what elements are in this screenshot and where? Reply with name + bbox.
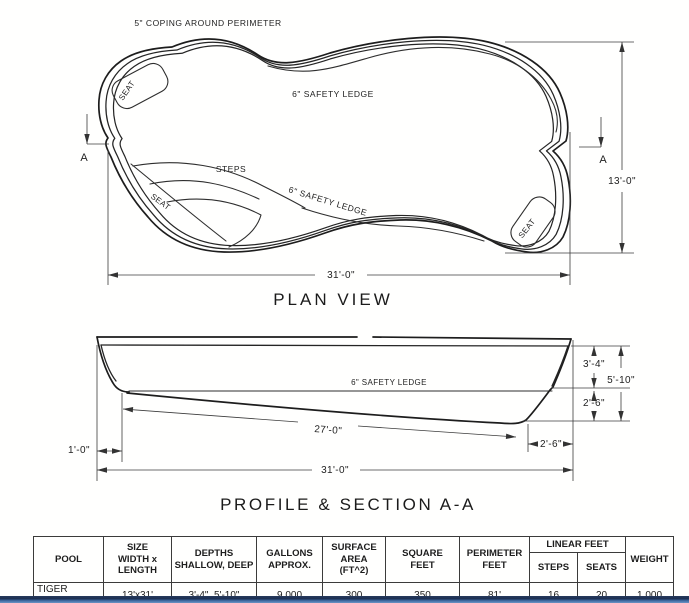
col-header-depths: DEPTHS SHALLOW, DEEP — [172, 537, 257, 583]
shallow-offset-dim: 1'-0" — [68, 445, 90, 456]
technical-drawing: 5" COPING AROUND PERIMETER 6" SAFETY LED… — [0, 0, 689, 530]
col-header-gallons: GALLONS APPROX. — [257, 537, 323, 583]
plan-width-dim: 13'-0" — [608, 176, 636, 187]
safety-ledge-label-top: 6" SAFETY LEDGE — [292, 89, 374, 99]
steps-label: STEPS — [216, 164, 246, 174]
floor-line — [127, 388, 552, 424]
step-edge-3 — [167, 199, 261, 247]
ledge-to-floor-dim: 2'-6" — [583, 398, 605, 409]
plan-view: 5" COPING AROUND PERIMETER 6" SAFETY LED… — [80, 18, 636, 285]
dim-27ft-left — [123, 409, 298, 422]
rim-inner — [101, 345, 568, 346]
step-edge-2 — [150, 181, 259, 199]
overall-depth-dim: 5'-10" — [607, 375, 635, 386]
pool-spec-sheet: 5" COPING AROUND PERIMETER 6" SAFETY LED… — [0, 0, 689, 603]
col-header-steps: STEPS — [530, 553, 578, 583]
plan-view-title: PLAN VIEW — [273, 290, 393, 310]
section-marker-a-right: A — [599, 154, 607, 166]
rim-top — [97, 337, 571, 339]
col-header-linear-feet: LINEAR FEET — [530, 537, 626, 553]
col-header-perimeter: PERIMETER FEET — [460, 537, 530, 583]
col-header-pool: POOL — [34, 537, 104, 583]
spec-table: POOL SIZE WIDTH x LENGTH DEPTHS SHALLOW,… — [33, 536, 674, 603]
seat-label-bottom-right: SEAT — [517, 217, 538, 240]
profile-view-title: PROFILE & SECTION A-A — [220, 495, 476, 515]
profile-length-dim: 31'-0" — [321, 465, 349, 476]
coping-label: 5" COPING AROUND PERIMETER — [134, 18, 281, 28]
dim-27ft-right — [358, 426, 516, 437]
table-header-row-1: POOL SIZE WIDTH x LENGTH DEPTHS SHALLOW,… — [34, 537, 674, 553]
profile-safety-ledge-label: 6" SAFETY LEDGE — [351, 378, 427, 387]
col-header-weight: WEIGHT — [626, 537, 674, 583]
section-marker-right-lines — [579, 117, 601, 147]
pool-outline-plan — [99, 37, 570, 252]
deep-end-width-dim: 2'-6" — [540, 439, 562, 450]
profile-dimension-lines — [97, 340, 630, 481]
col-header-size: SIZE WIDTH x LENGTH — [104, 537, 172, 583]
col-header-square-feet: SQUARE FEET — [386, 537, 460, 583]
section-marker-a-left: A — [80, 152, 88, 164]
slope-dim-27ft: 27'-0" — [314, 424, 343, 437]
col-header-seats: SEATS — [578, 553, 626, 583]
plan-length-dim: 31'-0" — [327, 270, 355, 281]
section-marker-left-lines — [87, 114, 109, 144]
right-wall-inner — [552, 346, 568, 386]
pool-outline-profile — [97, 337, 571, 424]
scan-edge-stripe — [0, 596, 689, 603]
profile-view: 6" SAFETY LEDGE 27'-0" 3'-4" 5'-10" 2'-6… — [68, 337, 635, 481]
safety-ledge-label-mid: 6" SAFETY LEDGE — [287, 184, 368, 217]
col-header-surface-area: SURFACE AREA (FT^2) — [323, 537, 386, 583]
shallow-depth-dim: 3'-4" — [583, 359, 605, 370]
